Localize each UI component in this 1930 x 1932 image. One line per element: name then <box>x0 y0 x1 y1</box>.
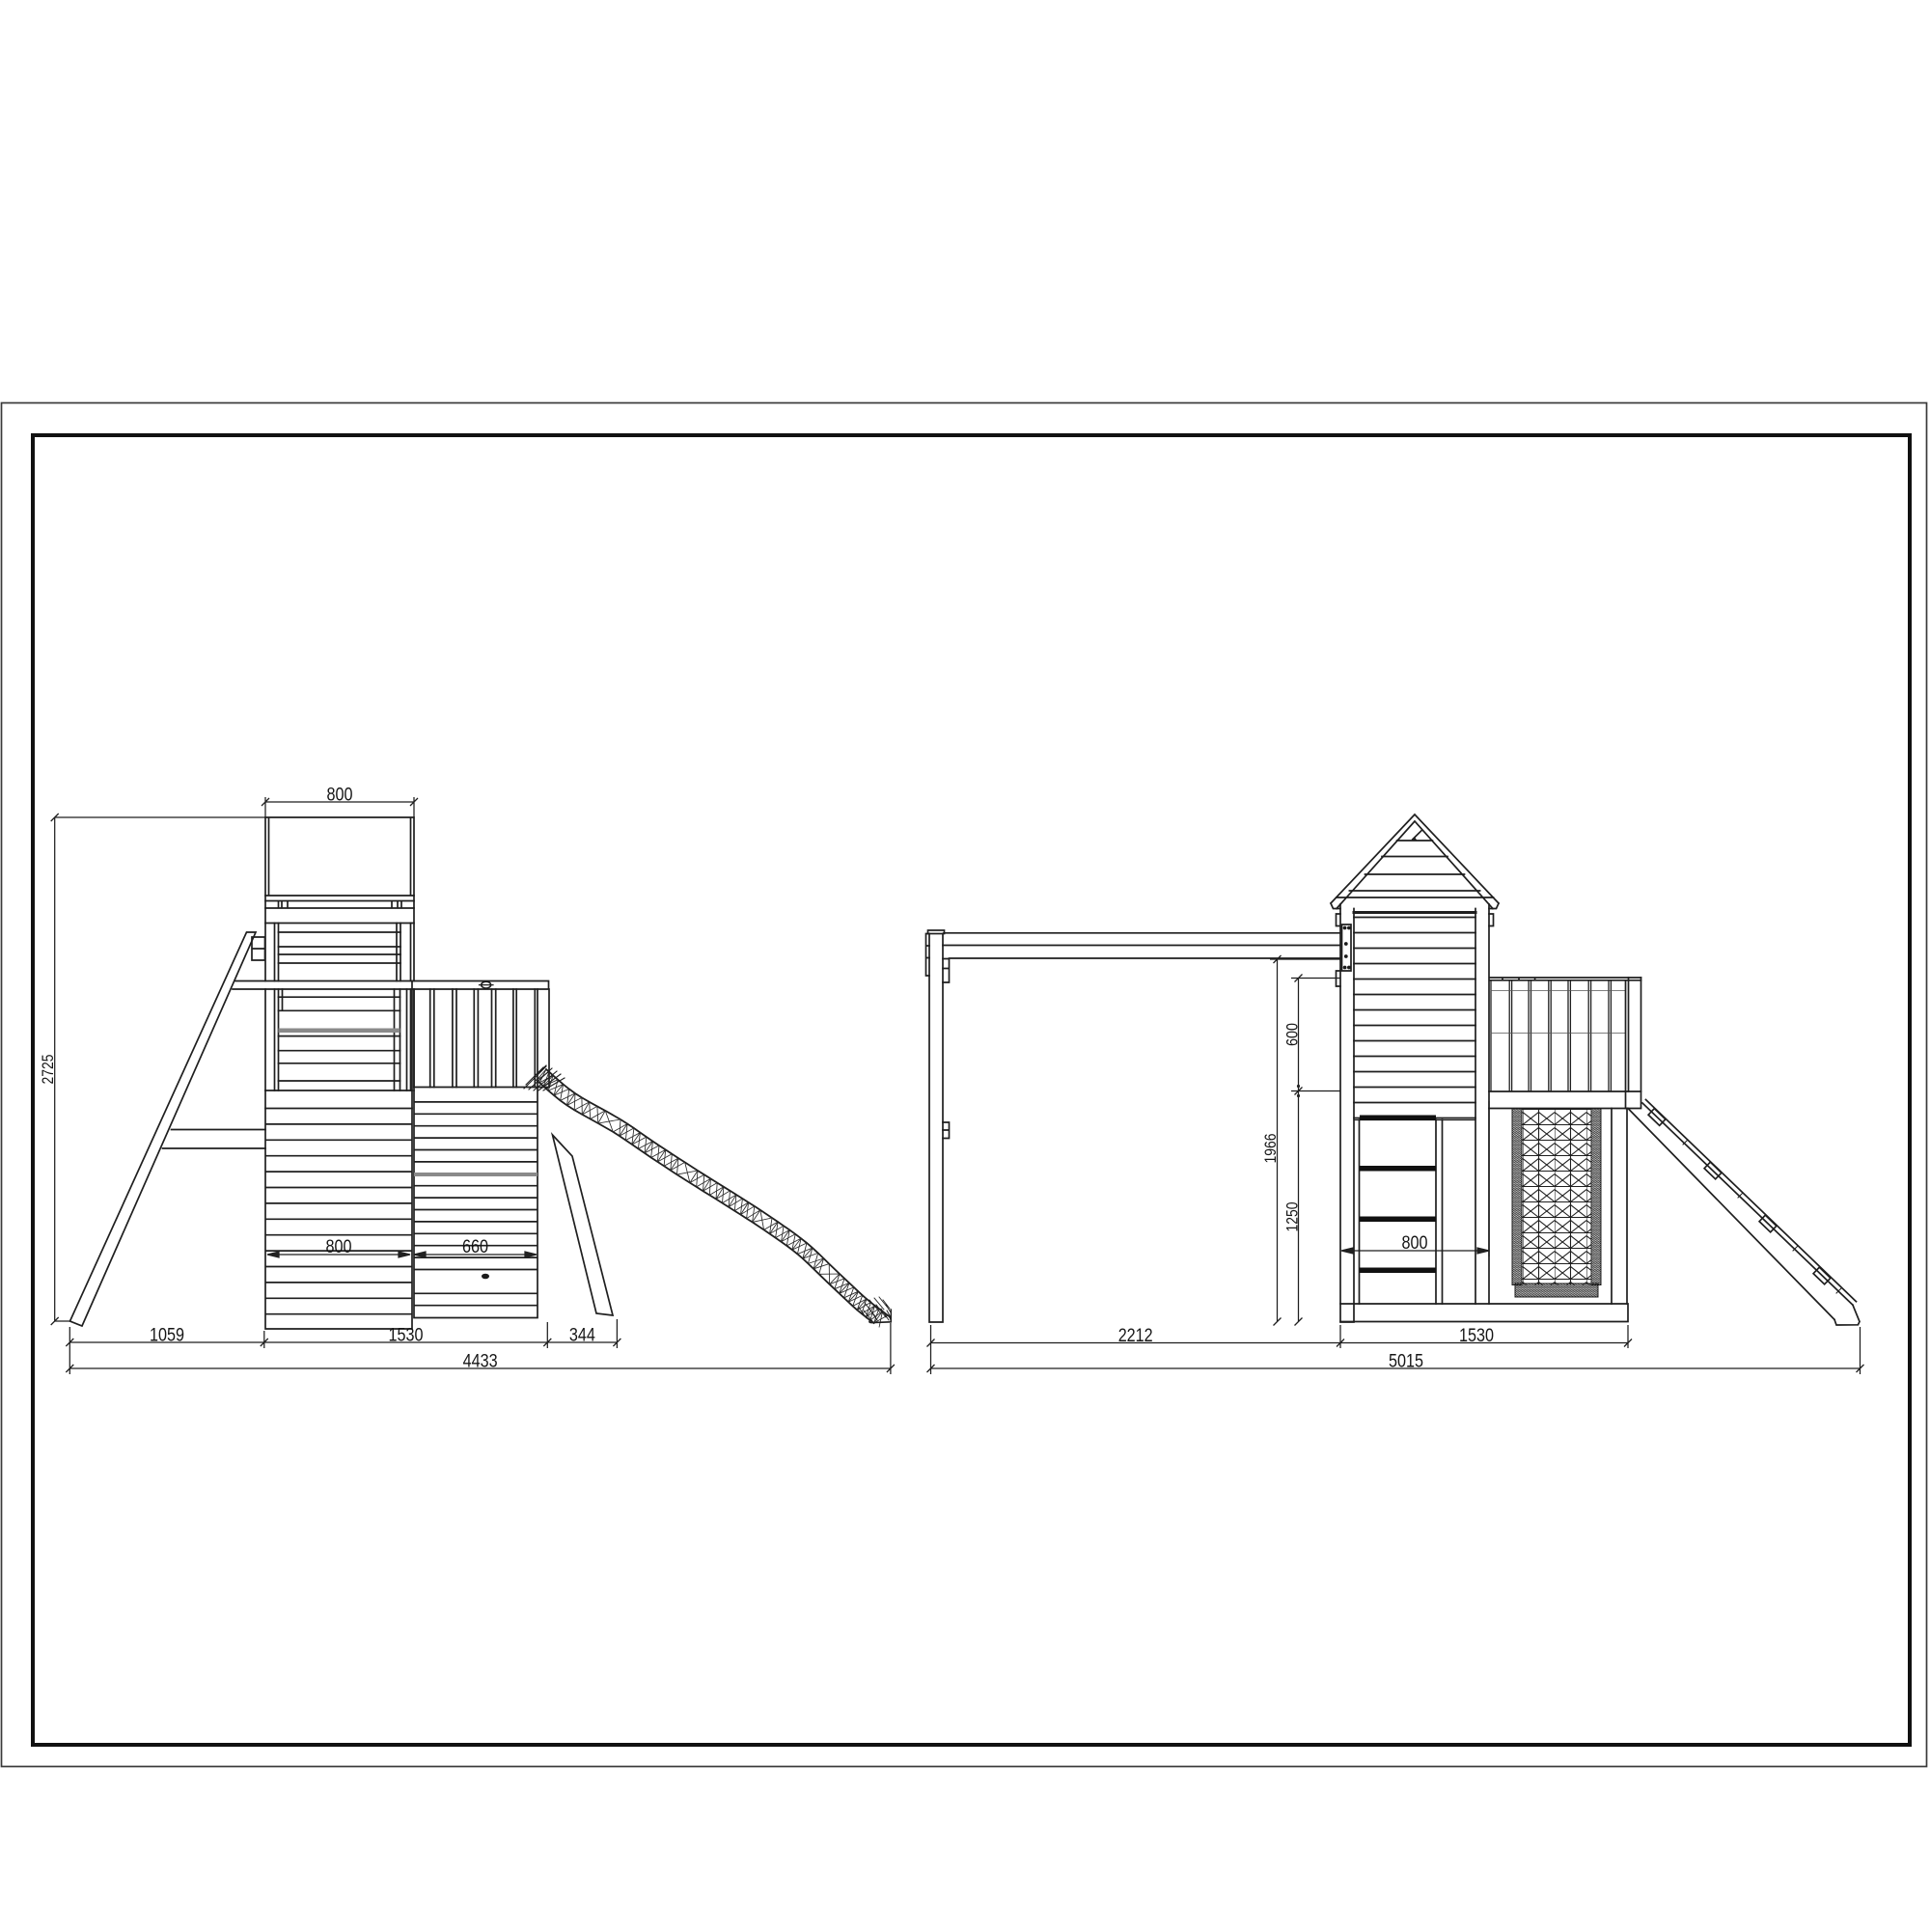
svg-text:800: 800 <box>326 1237 352 1257</box>
svg-text:800: 800 <box>1402 1233 1428 1254</box>
svg-text:4433: 4433 <box>463 1352 498 1372</box>
svg-text:800: 800 <box>327 786 353 806</box>
svg-text:1250: 1250 <box>1283 1202 1302 1232</box>
svg-text:1530: 1530 <box>1459 1326 1494 1346</box>
svg-text:600: 600 <box>1283 1023 1302 1046</box>
svg-text:1059: 1059 <box>150 1326 184 1346</box>
svg-text:2725: 2725 <box>39 1055 57 1085</box>
svg-text:5015: 5015 <box>1389 1352 1423 1372</box>
svg-text:1966: 1966 <box>1261 1134 1280 1164</box>
svg-text:344: 344 <box>569 1326 595 1346</box>
svg-text:1530: 1530 <box>389 1326 424 1346</box>
svg-text:2212: 2212 <box>1118 1326 1153 1346</box>
svg-text:660: 660 <box>462 1237 488 1257</box>
